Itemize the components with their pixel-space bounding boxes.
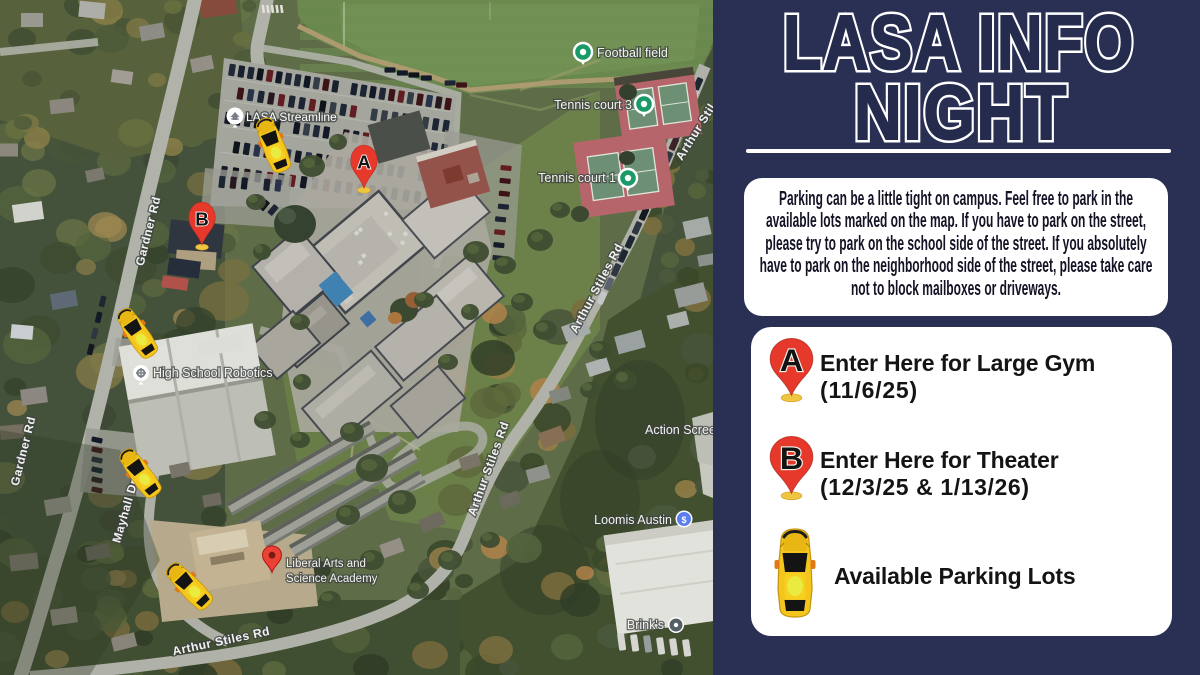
svg-text:B: B	[780, 440, 803, 475]
svg-text:B: B	[195, 208, 209, 229]
svg-text:Football field: Football field	[597, 46, 668, 60]
svg-text:Liberal Arts and: Liberal Arts and	[286, 558, 366, 570]
svg-text:A: A	[780, 342, 803, 377]
svg-text:Brink's: Brink's	[627, 618, 664, 632]
svg-text:Loomis Austin: Loomis Austin	[594, 513, 672, 527]
svg-text:A: A	[357, 151, 371, 172]
svg-text:High School Robotics: High School Robotics	[153, 366, 273, 380]
svg-text:Tennis court 3: Tennis court 3	[554, 98, 632, 112]
svg-text:Tennis court 1: Tennis court 1	[538, 171, 616, 185]
svg-text:Action Screen: Action Screen	[645, 423, 713, 437]
svg-text:Science Academy: Science Academy	[286, 573, 378, 585]
svg-text:$: $	[681, 515, 686, 525]
svg-text:NIGHT: NIGHT	[854, 70, 1068, 150]
